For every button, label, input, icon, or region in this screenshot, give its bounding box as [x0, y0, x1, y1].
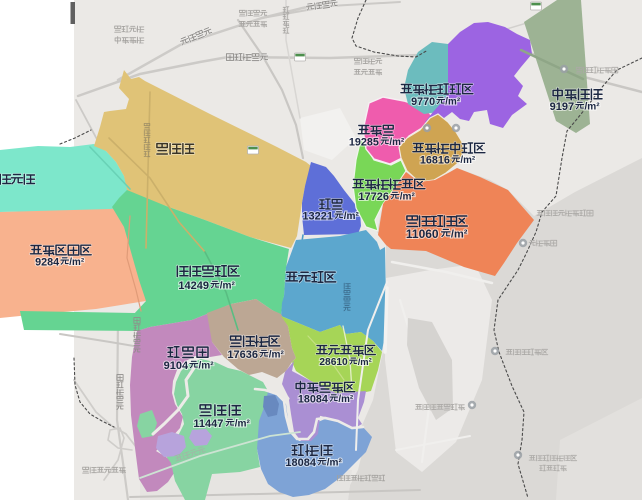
- svg-text:/m²: /m²: [389, 137, 405, 148]
- svg-text:/m²: /m²: [400, 192, 416, 203]
- svg-text:/m²: /m²: [460, 155, 476, 166]
- svg-text:/m²: /m²: [585, 102, 601, 113]
- svg-text:/m²: /m²: [358, 356, 372, 367]
- svg-text:/m²: /m²: [445, 97, 461, 108]
- svg-text:16816: 16816: [420, 154, 450, 166]
- svg-text:/m²: /m²: [199, 361, 215, 372]
- svg-text:/m²: /m²: [344, 211, 360, 222]
- svg-text:/m²: /m²: [269, 350, 285, 361]
- svg-text:11060: 11060: [406, 227, 439, 241]
- svg-text:13221: 13221: [302, 211, 333, 223]
- svg-text:18084: 18084: [285, 457, 316, 469]
- svg-text:/m²: /m²: [220, 281, 236, 292]
- svg-text:11447: 11447: [193, 418, 223, 430]
- svg-text:17636: 17636: [227, 349, 258, 361]
- svg-text:19285: 19285: [349, 136, 379, 148]
- svg-text:14249: 14249: [178, 280, 209, 292]
- svg-text:/m²: /m²: [451, 229, 468, 241]
- svg-text:/m²: /m²: [69, 257, 85, 268]
- svg-text:18084: 18084: [298, 393, 328, 405]
- svg-text:28610: 28610: [319, 357, 348, 368]
- svg-text:9197: 9197: [550, 101, 574, 113]
- svg-text:9284: 9284: [35, 256, 59, 268]
- svg-text:9770: 9770: [411, 96, 435, 108]
- svg-text:/m²: /m²: [338, 394, 354, 405]
- svg-text:/m²: /m²: [235, 419, 251, 430]
- svg-text:17726: 17726: [358, 191, 389, 203]
- svg-text:/m²: /m²: [327, 458, 343, 469]
- svg-text:9104: 9104: [164, 360, 189, 372]
